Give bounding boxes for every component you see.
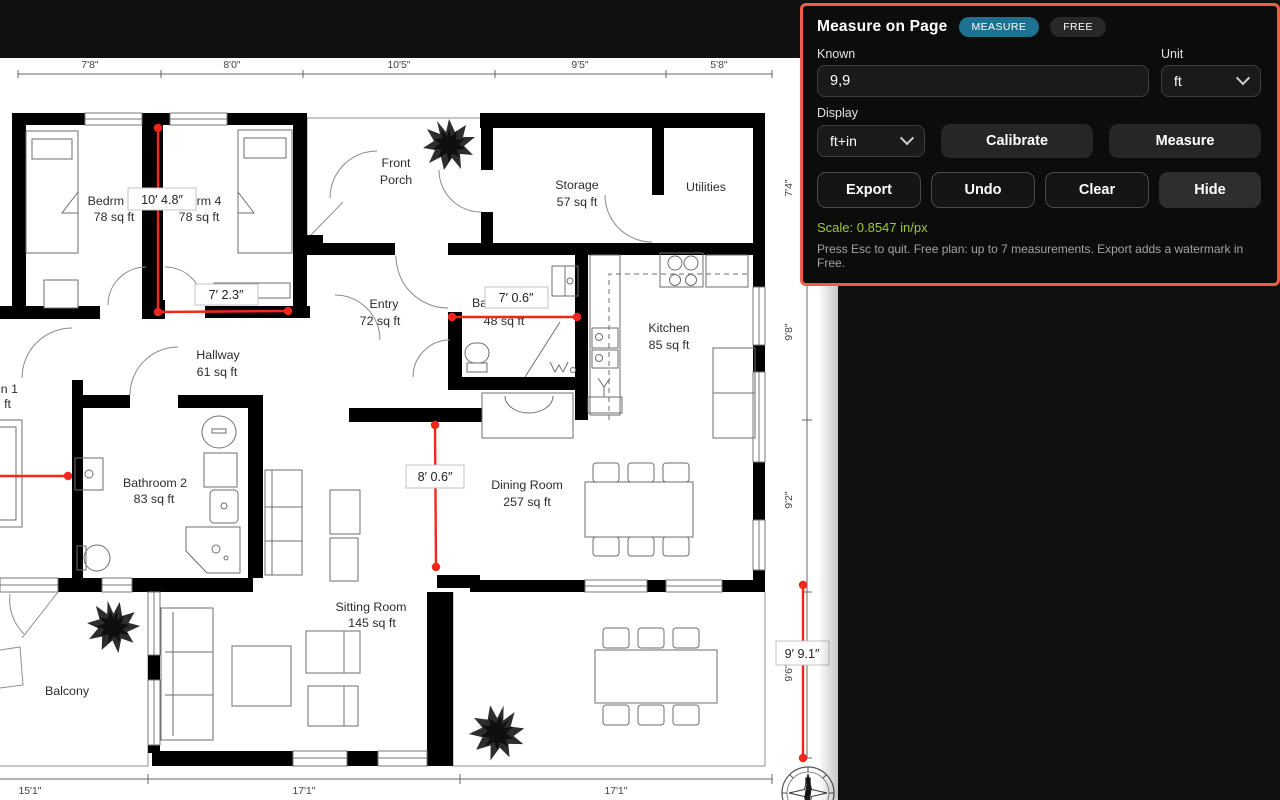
measurement-label: 9′ 9.1″ [776,641,829,665]
plant [423,119,475,170]
unit-select-value: ft [1174,73,1182,89]
window [753,520,765,570]
window [85,113,142,125]
measurement-label: 10′ 4.8″ [128,188,196,210]
panel-title: Measure on Page [817,18,948,36]
window [666,580,722,592]
dim-top-1: 7'8" [81,60,99,71]
room-label: Balcony [45,684,90,698]
sofa [265,470,302,575]
hide-button[interactable]: Hide [1159,172,1261,208]
sitting-room-furniture [161,608,360,740]
window [148,592,160,655]
bed [26,131,78,253]
display-select-value: ft+in [830,133,857,149]
floor-plan-page[interactable]: 7'8" 8'0" 10'5" 9'5" 5'8" 15'1" 17'1" 17… [0,58,838,800]
dim-right-1: 7'4" [784,179,795,197]
svg-text:10′ 4.8″: 10′ 4.8″ [141,193,183,207]
dim-top-3: 10'5" [387,60,410,71]
room-area: 61 sq ft [197,365,238,379]
room-area: 85 sq ft [649,338,690,352]
measurement-label: 7′ 0.6″ [485,287,548,308]
svg-text:9′ 9.1″: 9′ 9.1″ [785,647,820,661]
dim-right-2: 9'8" [784,323,795,341]
patio-table-set [595,628,717,725]
field-labels-row: Known Unit [817,47,1261,61]
known-input[interactable] [817,65,1149,97]
dim-bottom-3: 17'1" [604,786,627,797]
svg-text:8′ 0.6″: 8′ 0.6″ [418,470,453,484]
window [170,113,227,125]
undo-button[interactable]: Undo [931,172,1035,208]
window [753,287,765,345]
window [148,680,160,745]
room-area: 83 sq ft [134,492,175,506]
measurement-label: 7′ 2.3″ [195,284,258,305]
compass-north-label: N [805,776,812,786]
room-label: Kitchen [648,321,689,335]
unit-select[interactable]: ft [1161,65,1261,97]
window [293,751,347,766]
dresser [44,280,78,308]
floor-plan-drawing[interactable]: 7'8" 8'0" 10'5" 9'5" 5'8" 15'1" 17'1" 17… [0,58,838,800]
measurement-label: 8′ 0.6″ [406,465,464,488]
dim-right-3: 9'2" [784,491,795,509]
room-label: Porch [380,173,412,187]
side-table [330,490,360,534]
dim-top-2: 8'0" [223,60,241,71]
room-area: 257 sq ft [503,495,551,509]
dim-top-4: 9'5" [571,60,589,71]
plan-badge: FREE [1050,17,1106,37]
dim-bottom-2: 17'1" [292,786,315,797]
window [102,578,132,592]
room-label-truncated: n 1 [1,382,18,396]
room-label: Bathroom 2 [123,476,187,490]
window [585,580,647,592]
dim-bottom-1: 15'1" [18,786,41,797]
room-label: Dining Room [491,478,563,492]
bed [0,420,22,527]
dim-top-5: 5'8" [710,60,728,71]
unit-label: Unit [1161,47,1261,61]
export-button[interactable]: Export [817,172,921,208]
dining-table-set [585,463,693,556]
measurement-line[interactable] [431,421,440,571]
desk [482,393,573,438]
plant [81,595,144,658]
display-label: Display [817,106,1261,120]
mode-badge: MEASURE [959,17,1040,37]
measure-button[interactable]: Measure [1109,124,1261,158]
room-area: 145 sq ft [348,616,396,630]
side-table [330,538,358,581]
room-label: Utilities [686,180,726,194]
dim-right-4: 9'6" [784,664,795,682]
room-label-truncated: ft [4,397,11,411]
chevron-down-icon [1236,71,1250,85]
screen: 7'8" 8'0" 10'5" 9'5" 5'8" 15'1" 17'1" 17… [0,0,1280,800]
calibrate-button[interactable]: Calibrate [941,124,1093,158]
known-label: Known [817,47,1161,61]
room-label: Front [382,156,411,170]
clear-button[interactable]: Clear [1045,172,1149,208]
svg-text:7′ 0.6″: 7′ 0.6″ [499,291,534,305]
room-area: 78 sq ft [179,210,220,224]
room-label: Storage [555,178,599,192]
window [0,578,58,592]
compass-rose: N [782,767,834,800]
svg-text:7′ 2.3″: 7′ 2.3″ [209,288,244,302]
room-area: 78 sq ft [94,210,135,224]
room-area: 57 sq ft [557,195,598,209]
bed [238,130,292,253]
measurement-line[interactable] [799,581,807,762]
window [378,751,427,766]
room-label: Sitting Room [336,600,407,614]
help-text: Press Esc to quit. Free plan: up to 7 me… [817,242,1261,270]
room-label: Bedrm 3 [88,194,135,208]
scale-status: Scale: 0.8547 in/px [817,220,1261,235]
room-area: 72 sq ft [360,314,401,328]
chevron-down-icon [900,131,914,145]
room-label: Entry [370,297,400,311]
measure-on-page-panel: Measure on Page MEASURE FREE Known Unit … [800,3,1280,286]
plant [459,695,535,771]
panel-header: Measure on Page MEASURE FREE [817,17,1261,37]
room-label: Hallway [196,348,240,362]
display-select[interactable]: ft+in [817,125,925,157]
